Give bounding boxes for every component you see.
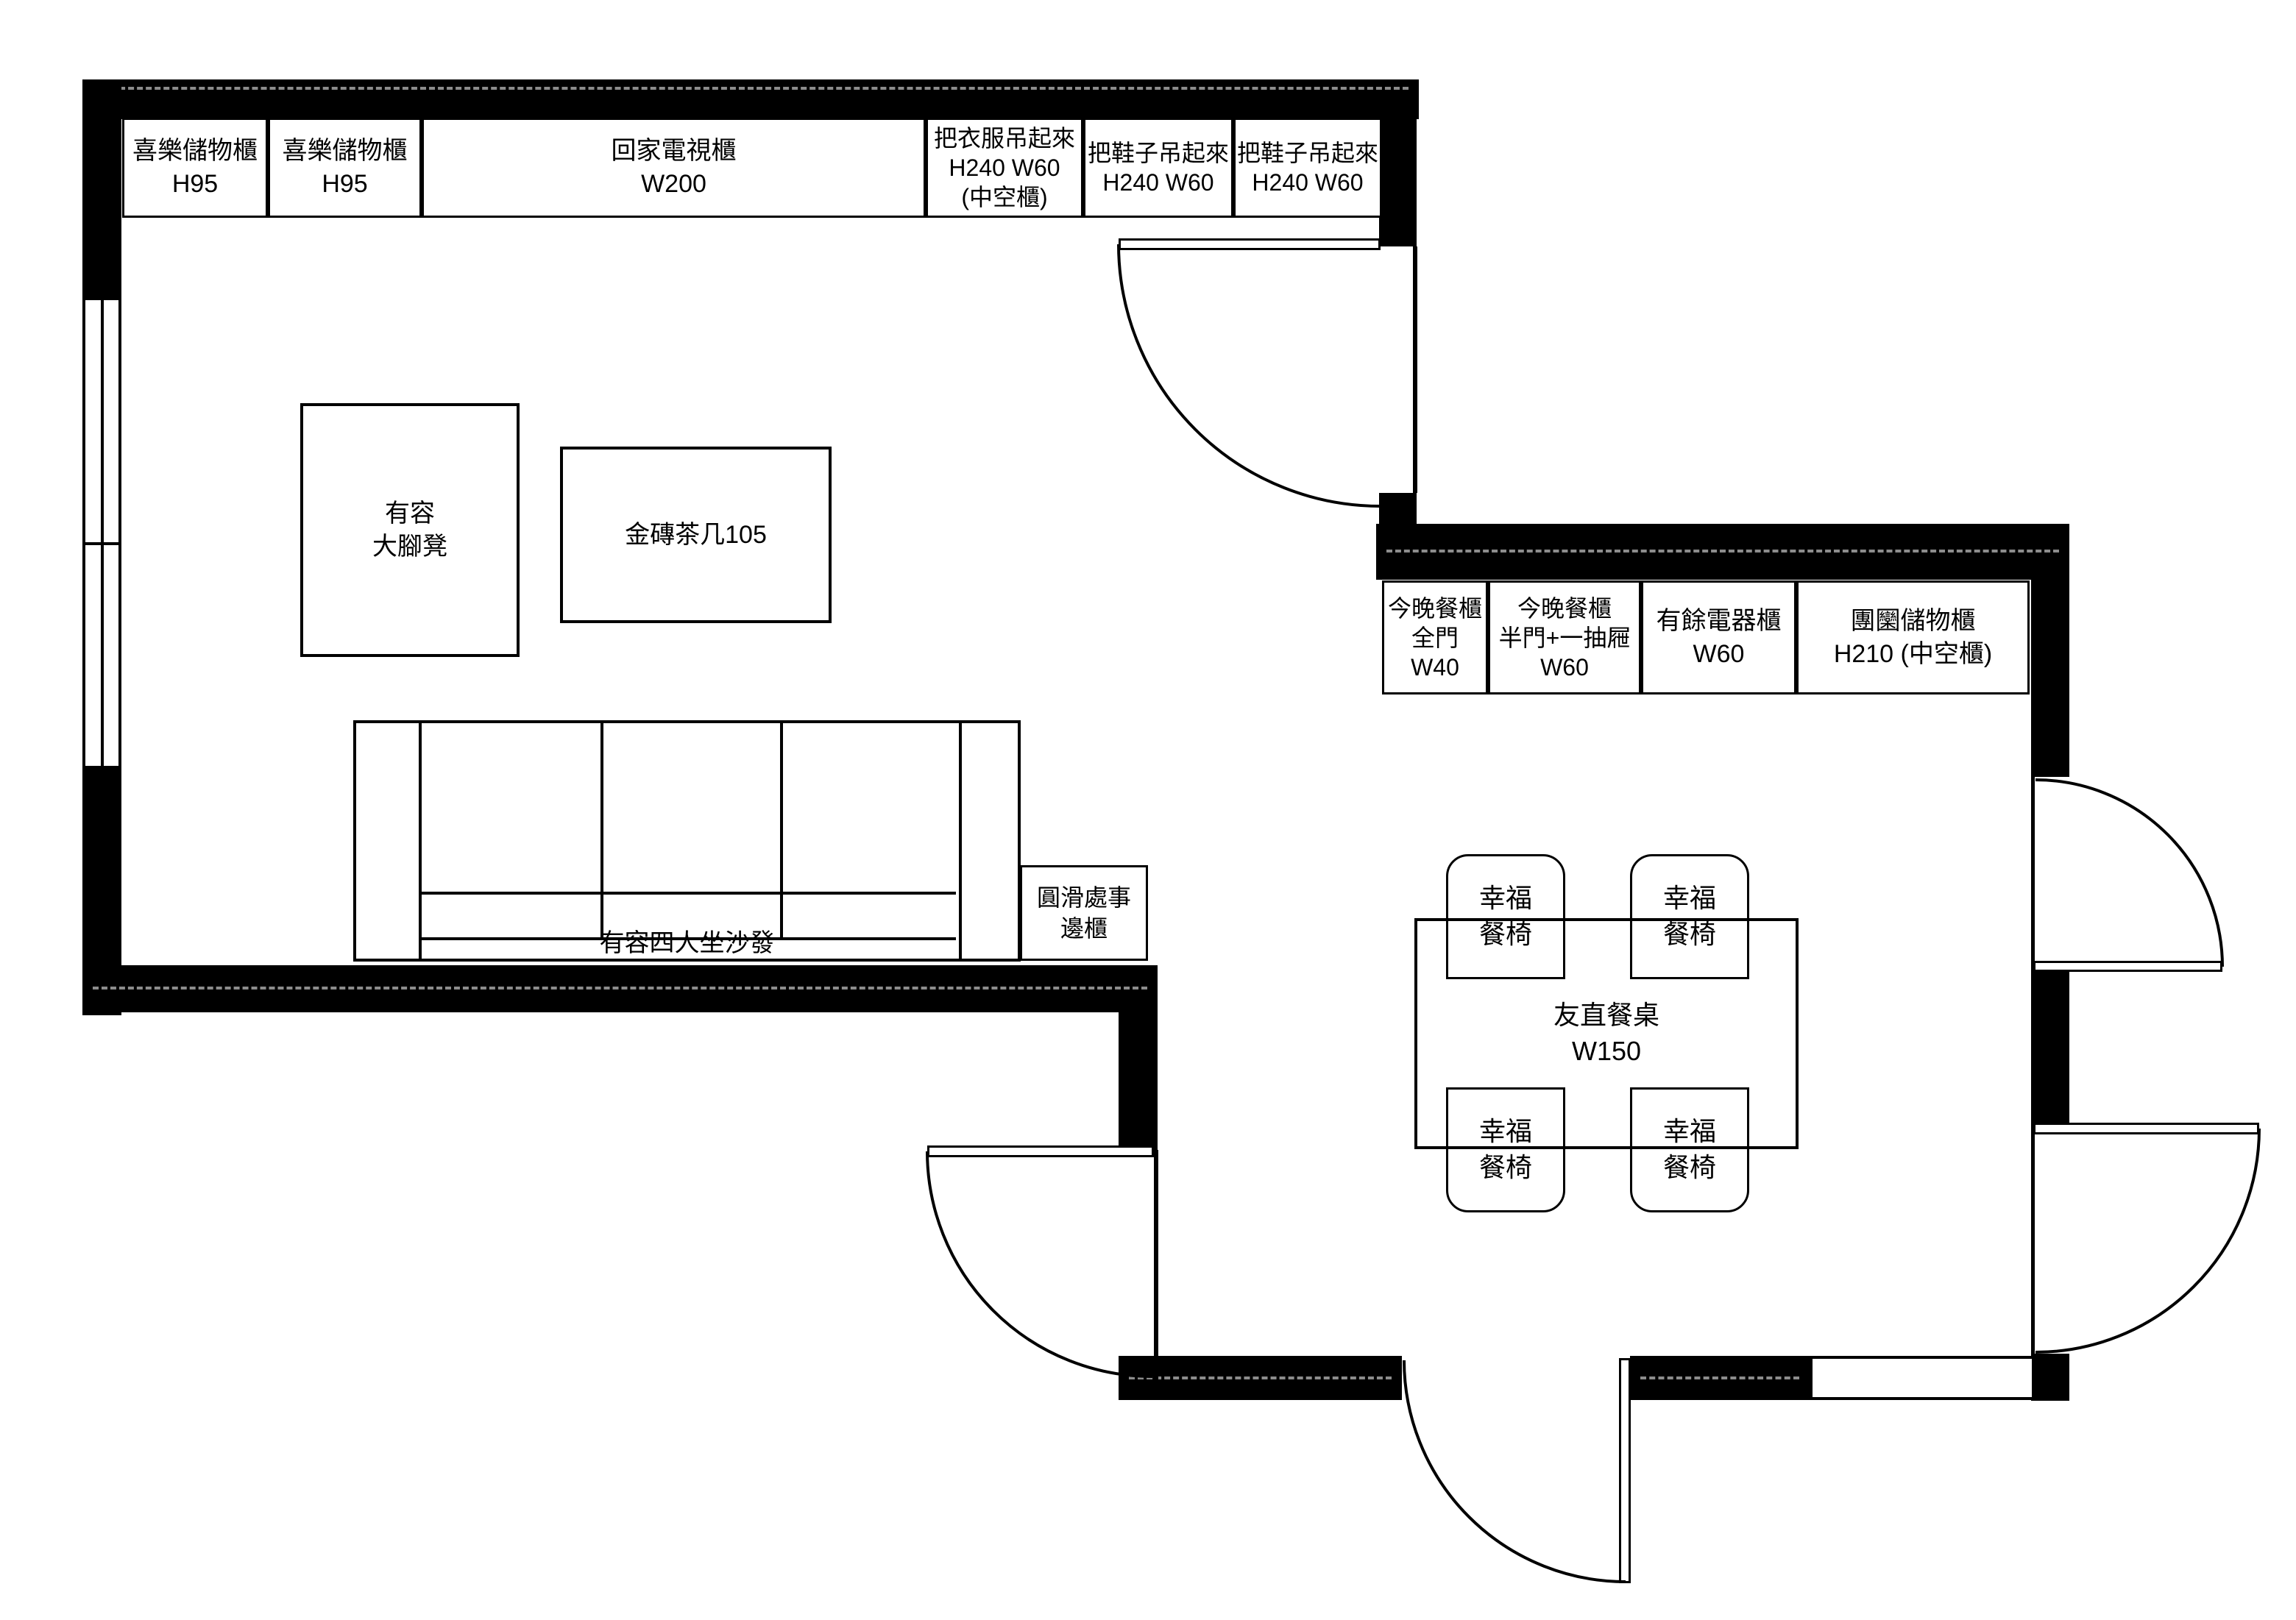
door-hall-arc <box>927 1151 1152 1376</box>
ottoman-label: 有容 <box>385 497 435 530</box>
cabinet-tv: 回家電視櫃 W200 <box>422 118 926 218</box>
cabinet-clothes-hanging: 把衣服吊起來 H240 W60 (中空櫃) <box>926 118 1083 218</box>
cabinet-joy-storage-1: 喜樂儲物櫃 H95 <box>122 118 268 218</box>
cabinet-size: W40 <box>1411 653 1459 682</box>
cabinet-note: (中空櫃) <box>961 182 1047 212</box>
side-cabinet: 圓滑處事 邊櫃 <box>1020 865 1148 961</box>
cabinet-shoes-hanging-2: 把鞋子吊起來 H240 W60 <box>1233 118 1382 218</box>
door-right-upper-arc <box>2035 780 2222 967</box>
cabinet-detail: 全門 <box>1411 623 1459 653</box>
dining-table: 友直餐桌 W150 <box>1414 918 1799 1149</box>
cabinet-label: 今晚餐櫃 <box>1388 594 1482 623</box>
cabinet-detail: 半門+一抽屜 <box>1499 623 1631 653</box>
cabinet-label: 把鞋子吊起來 <box>1237 138 1378 168</box>
cabinet-size: W60 <box>1693 638 1745 671</box>
cabinet-label: 把衣服吊起來 <box>934 124 1075 153</box>
cabinet-size: W200 <box>641 168 706 201</box>
cabinet-joy-storage-2: 喜樂儲物櫃 H95 <box>268 118 422 218</box>
cabinet-label: 把鞋子吊起來 <box>1088 138 1229 168</box>
door-right-lower-arc <box>2035 1129 2259 1352</box>
sofa: 有容四人坐沙發 <box>353 720 1021 962</box>
dining-table-label: 友直餐桌 <box>1553 998 1659 1034</box>
dining-table-size: W150 <box>1572 1034 1641 1070</box>
coffee-table-label: 金磚茶几105 <box>625 519 767 552</box>
cabinet-dinner-half-door-drawer: 今晚餐櫃 半門+一抽屜 W60 <box>1488 580 1641 694</box>
cabinet-shoes-hanging-1: 把鞋子吊起來 H240 W60 <box>1083 118 1233 218</box>
chair-label: 幸福 <box>1663 881 1716 917</box>
chair-label: 幸福 <box>1479 881 1532 917</box>
door-bottom-arc <box>1404 1360 1626 1582</box>
cabinet-size: H240 W60 <box>949 153 1060 182</box>
cabinet-label: 喜樂儲物櫃 <box>283 135 408 168</box>
cabinet-size: H210 (中空櫃) <box>1834 638 1992 671</box>
coffee-table: 金磚茶几105 <box>560 447 832 623</box>
ottoman-label-2: 大腳凳 <box>372 530 447 564</box>
cabinet-reunion-storage: 團圞儲物櫃 H210 (中空櫃) <box>1796 580 2030 694</box>
floor-plan: 喜樂儲物櫃 H95 喜樂儲物櫃 H95 回家電視櫃 W200 把衣服吊起來 H2… <box>0 0 2296 1620</box>
door-entry-arc <box>1119 244 1381 506</box>
sofa-cushion-divider-1 <box>600 723 603 939</box>
cabinet-label: 團圞儲物櫃 <box>1851 605 1976 638</box>
ottoman: 有容 大腳凳 <box>300 403 520 657</box>
chair-label-2: 餐椅 <box>1663 1150 1716 1186</box>
side-cabinet-label-2: 邊櫃 <box>1060 913 1108 944</box>
side-cabinet-label: 圓滑處事 <box>1037 882 1131 913</box>
sofa-label: 有容四人坐沙發 <box>356 923 1018 959</box>
cabinet-size: H240 W60 <box>1102 168 1213 197</box>
cabinet-size: W60 <box>1540 653 1589 682</box>
cabinet-label: 喜樂儲物櫃 <box>132 135 258 168</box>
cabinet-dinner-full-door: 今晚餐櫃 全門 W40 <box>1382 580 1488 694</box>
cabinet-size: H95 <box>172 168 218 201</box>
cabinet-label: 回家電視櫃 <box>612 135 737 168</box>
door-arcs-overlay <box>0 0 2296 1620</box>
sofa-seat-edge-line <box>419 892 956 895</box>
chair-label-2: 餐椅 <box>1479 1150 1532 1186</box>
cabinet-appliance: 有餘電器櫃 W60 <box>1641 580 1796 694</box>
sofa-cushion-divider-2 <box>780 723 783 939</box>
cabinet-size: H240 W60 <box>1252 168 1363 197</box>
cabinet-label: 有餘電器櫃 <box>1657 605 1782 638</box>
cabinet-size: H95 <box>322 168 367 201</box>
cabinet-label: 今晚餐櫃 <box>1517 594 1612 623</box>
